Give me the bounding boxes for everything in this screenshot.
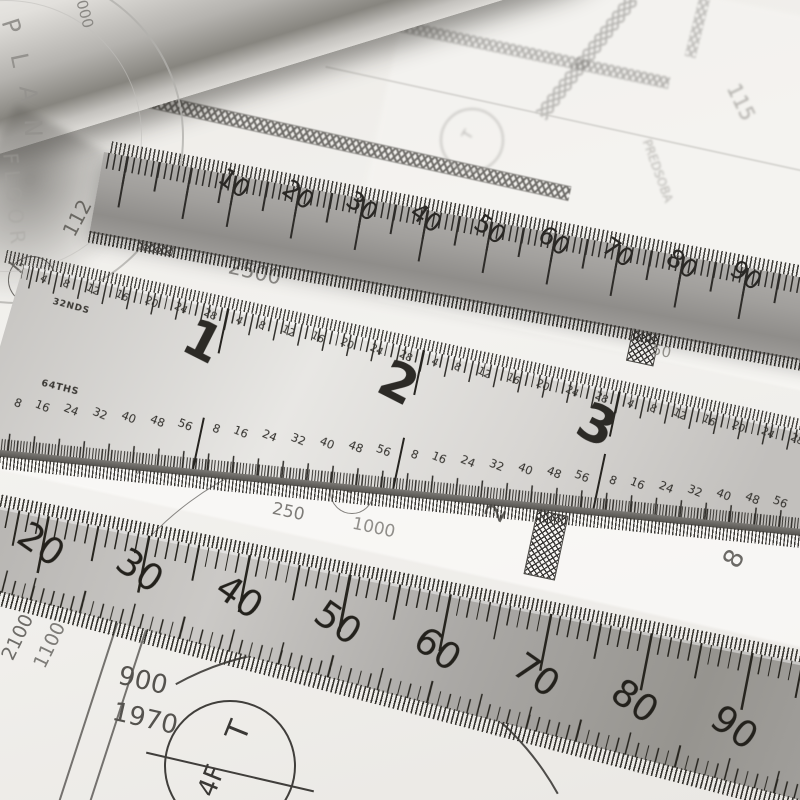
fraction-number: 40 [119, 408, 138, 427]
fraction-number: 8 [607, 472, 619, 489]
fraction-number: 40 [714, 485, 733, 504]
fraction-number: 8 [210, 421, 222, 438]
fraction-number: 24 [260, 426, 279, 445]
fraction-number: 8 [647, 402, 659, 417]
fraction-number: 48 [346, 437, 365, 456]
fraction-number: 48 [147, 412, 166, 431]
fraction-number: 8 [60, 277, 72, 292]
plan-faint-circle: T [440, 108, 504, 172]
fraction-number: 56 [374, 441, 393, 460]
fraction-number: 40 [515, 459, 534, 478]
door-tag-label-4f: 4F [194, 762, 230, 800]
fraction-number: 32 [685, 481, 704, 500]
fraction-number: 56 [573, 467, 592, 486]
roll-title-letter-n: N [21, 119, 46, 138]
fraction-number: 32 [90, 404, 109, 423]
fraction-number: 32 [487, 456, 506, 475]
fraction-number: 8 [408, 446, 420, 463]
fraction-number: 8 [451, 361, 463, 376]
fraction-number: 24 [657, 478, 676, 497]
fraction-number: 48 [742, 489, 761, 508]
fraction-number: 24 [458, 452, 477, 471]
photo-rulers-on-blueprints: T P P T 4F T 112 2500 115 PREDSOBA 1970 … [0, 0, 800, 800]
middle-rule-64ths-scale-label: 64THS [40, 379, 80, 398]
fraction-number: 4 [233, 314, 245, 329]
roll-title-letter-a: A [15, 85, 41, 104]
fraction-number: 8 [256, 319, 268, 334]
middle-rule-32nds-scale-label: 32NDS [51, 298, 90, 317]
fraction-number: 40 [317, 434, 336, 453]
dim-1100-label: 1100 [31, 620, 69, 672]
fraction-number: 8 [12, 395, 24, 412]
fraction-number: 56 [176, 415, 195, 434]
door-tag-letter-t: T [222, 717, 257, 745]
faint-circle-letter: T [460, 128, 476, 142]
fraction-number: 16 [430, 448, 449, 467]
fraction-number: 24 [62, 400, 81, 419]
fraction-number: 16 [628, 474, 647, 493]
fraction-number: 4 [429, 356, 441, 371]
fraction-number: 32 [289, 430, 308, 449]
middle-rule-64ths-numbers-seg1: 8162432404856 [202, 420, 402, 461]
fraction-number: 16 [33, 397, 52, 416]
fraction-number: 4 [37, 273, 49, 288]
middle-rule-64ths-numbers-seg0: 8162432404856 [3, 394, 203, 435]
fraction-number: 16 [232, 423, 251, 442]
fraction-number: 4 [624, 397, 636, 412]
fraction-number: 48 [544, 463, 563, 482]
